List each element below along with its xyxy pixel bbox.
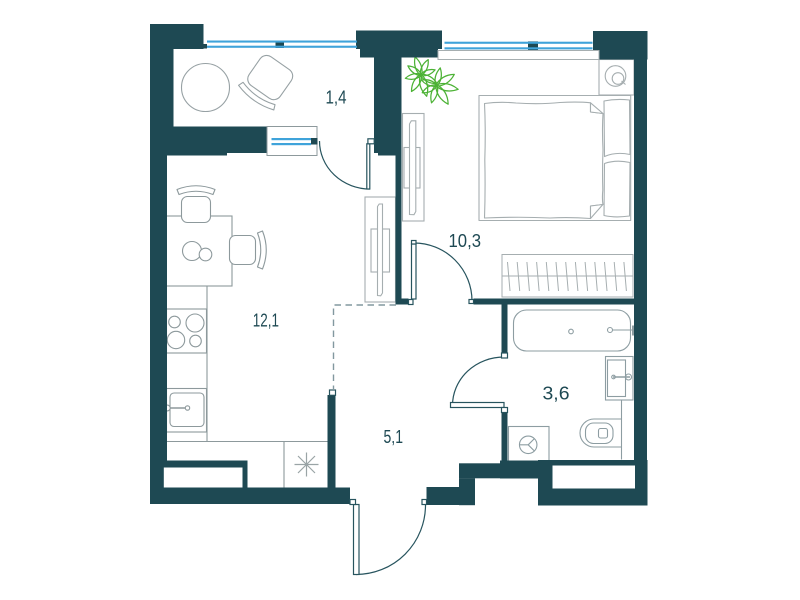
svg-text:10,3: 10,3: [449, 230, 482, 251]
svg-text:1,4: 1,4: [326, 86, 347, 107]
svg-text:5,1: 5,1: [384, 426, 404, 447]
svg-text:3,6: 3,6: [543, 383, 570, 404]
svg-text:12,1: 12,1: [253, 310, 279, 331]
